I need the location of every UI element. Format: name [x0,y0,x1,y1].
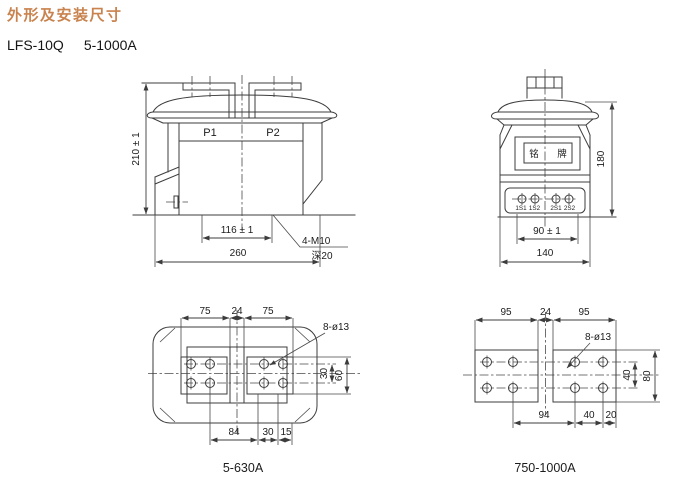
hole-note-text: 8-ø13 [585,332,612,343]
base-outline [153,327,317,423]
dim-height-210: 210 ± 1 [131,84,146,214]
dim-hole-rows-text: 40 [622,369,633,381]
dim-right-column: 40 80 [616,350,660,402]
dim-pad-height-text: 80 [642,370,653,382]
base-drawing-5-630a: 75 24 75 8-ø13 30 60 84 30 15 5-630A [140,300,375,490]
dim-height-text: 180 [596,150,607,167]
dim-bottom-c-text: 20 [605,410,617,421]
dim-pad-left-text: 75 [199,306,211,317]
dim-pad-right-text: 95 [578,307,590,318]
dim-pad-left-text: 95 [500,307,512,318]
front-view-drawing: P1 P2 210 ± 1 116 ± 1 4-M10 深20 260 [130,55,365,300]
dim-gap-text: 24 [540,307,552,318]
dim-height-text: 210 ± 1 [131,132,142,166]
hole-note: 8-ø13 [270,322,349,365]
nameplate-char-left: 铭 [529,148,539,160]
dim-bottom-a-text: 94 [538,410,550,421]
dim-bottom-b-text: 30 [262,427,274,438]
depth-note-text: 深20 [311,250,333,262]
terminal-label-1s2: 1S2 [529,205,541,212]
dim-bottom-a-text: 84 [228,427,240,438]
transformer-body [133,123,355,215]
label-p2: P2 [266,127,279,139]
dim-bottom-row: 84 30 15 [210,388,292,445]
dim-hole-span-text: 116 ± 1 [221,225,254,236]
dim-bottom-row: 94 40 20 [513,393,617,428]
dim-hole-rows-text: 30 [319,368,330,380]
label-p1: P1 [203,127,216,139]
dim-overall-text: 260 [230,248,247,259]
dim-bottom-c-text: 15 [280,427,292,438]
thread-note-text: 4-M10 [302,236,331,247]
caption-750-1000a: 750-1000A [514,461,576,475]
nameplate-char-right: 牌 [557,148,567,160]
terminal-label-2s1: 2S1 [550,205,562,212]
hole-note-text: 8-ø13 [323,322,350,333]
terminal-label-2s2: 2S2 [564,205,576,212]
page-title: 外形及安装尺寸 [7,4,123,25]
terminal-label-1s1: 1S1 [515,205,527,212]
dim-pad-height-text: 60 [334,370,345,382]
side-view-drawing: 铭 牌 1S1 1S2 2S1 2S2 180 90 ± 1 140 [460,55,665,300]
dim-hole-span-116: 116 ± 1 [202,215,272,243]
dim-bottom-b-text: 40 [583,410,595,421]
base-drawing-750-1000a: 95 24 95 8-ø13 40 80 94 40 20 750-1000A [455,300,670,490]
dim-terminal-span-text: 90 ± 1 [533,226,561,237]
current-range: 5-1000A [84,37,137,53]
dim-terminal-span-90: 90 ± 1 [517,214,578,244]
model-line: LFS-10Q5-1000A [7,37,137,53]
thread-note: 4-M10 深20 [273,215,348,262]
nameplate-panel [515,137,580,170]
dim-overall-text: 140 [537,248,554,259]
dim-gap-text: 24 [231,306,243,317]
caption-5-630a: 5-630A [223,461,264,475]
top-terminal-block [527,77,562,98]
dim-pad-right-text2: 75 [262,306,274,317]
dim-right-column: 30 60 [293,357,351,394]
model-code: LFS-10Q [7,37,64,53]
